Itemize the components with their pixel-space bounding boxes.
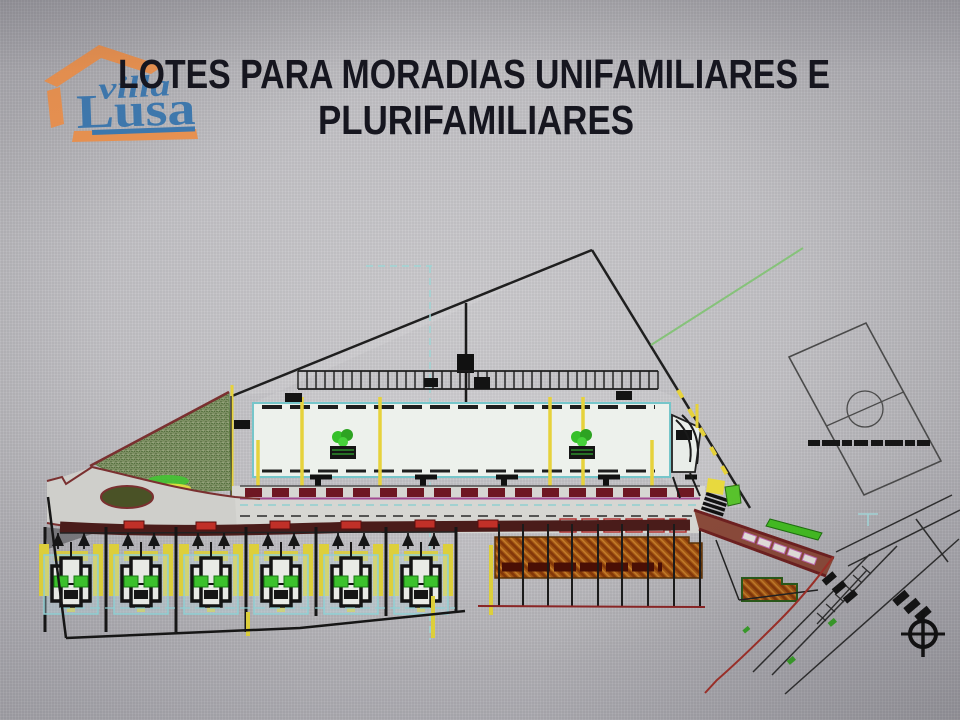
svg-text:PLURIFAMILIARES: PLURIFAMILIARES: [318, 97, 634, 143]
svg-text:LOTES PARA MORADIAS UNIFAMILIA: LOTES PARA MORADIAS UNIFAMILIARES E: [118, 51, 830, 97]
